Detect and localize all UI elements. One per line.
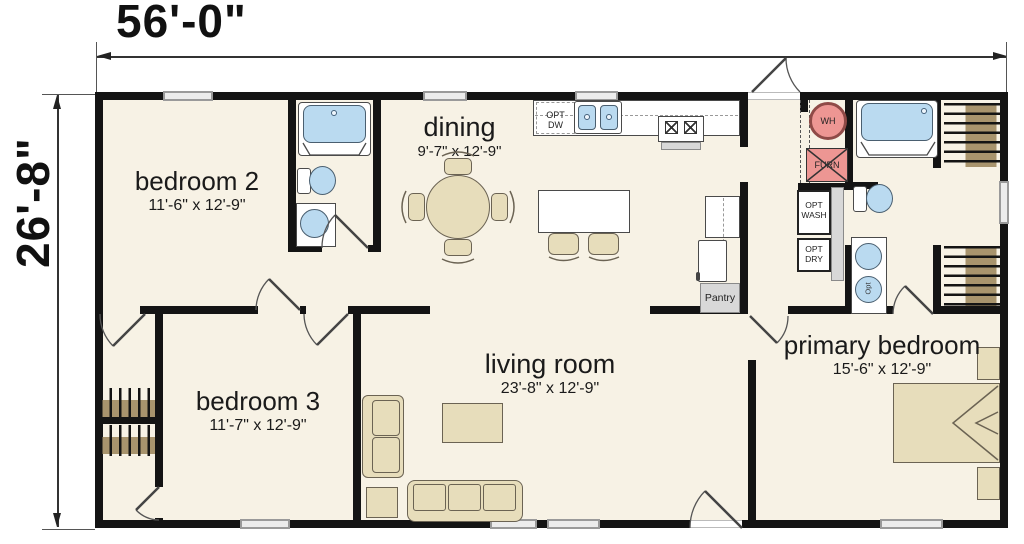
window [423,91,467,101]
window [547,519,600,529]
room-label-bedroom2: bedroom 2 11'-6" x 12'-9" [97,168,297,215]
wall-segment [742,520,1008,528]
opt-washer-label: OPT WASH [797,201,831,221]
refrigerator-handle [696,272,700,281]
height-dim-arrow-down [53,513,61,527]
window [240,519,290,529]
opt-dishwasher-label: OPT DW [536,110,575,131]
water-heater-label: WH [809,116,847,126]
refrigerator-icon [698,240,727,282]
sink-icon [300,209,329,238]
room-size: 11'-7" x 12'-9" [158,418,358,435]
toilet-icon [866,184,893,213]
burner-icon [665,121,678,134]
stool-icon [588,233,619,255]
toilet-icon [309,166,336,195]
dining-table-icon [426,175,490,239]
room-name: dining [392,113,527,141]
extension-line [1006,42,1007,92]
opt-dryer-label: OPT DRY [797,245,831,265]
chair-icon [444,239,472,256]
room-size: 9'-7" x 12'-9" [392,144,527,160]
wall-segment [140,306,258,314]
stool-icon [548,233,579,255]
wall-segment [95,520,690,528]
tub-drain [331,110,337,116]
closet-hangers-icon [944,103,1000,167]
room-label-bedroom3: bedroom 3 11'-7" x 12'-9" [158,388,358,435]
wall-segment [348,306,430,314]
wall-segment [155,518,163,528]
sofa-cushion [413,484,446,511]
room-label-primary-bedroom: primary bedroom 15'-6" x 12'-9" [768,332,996,379]
wall-segment [373,100,381,252]
window [999,181,1009,224]
wall-segment [740,182,748,314]
width-dimension-line [97,56,1007,58]
laundry-counter [831,187,844,281]
height-dim-arrow-up [53,95,61,109]
pantry-label: Pantry [700,292,740,304]
extension-line [42,529,95,530]
closet-hangers-icon [100,388,155,419]
wall-segment [933,245,941,314]
sofa-cushion [483,484,516,511]
furnace-label: FURN [806,160,848,170]
width-dim-arrow-left [97,52,111,60]
chair-icon [408,193,425,221]
room-name: bedroom 2 [97,168,297,195]
window [163,91,213,101]
overall-width-dimension: 56'-0" [116,0,247,48]
floor-plan-sheet: 56'-0" 26'-8" [0,0,1024,544]
loveseat-cushion [372,400,400,436]
room-name: primary bedroom [768,332,996,359]
nightstand-icon [977,467,1000,500]
closet-hangers-icon [944,246,1000,306]
chair-icon [491,193,508,221]
chair-icon [444,158,472,175]
kitchen-island [538,190,630,233]
room-label-living-room: living room 23'-8" x 12'-9" [430,350,670,398]
wall-segment [368,245,381,252]
rear-door-threshold [748,92,800,100]
room-size: 23'-8" x 12'-9" [430,381,670,398]
room-name: living room [430,350,670,378]
extension-line [42,94,95,95]
window [880,519,943,529]
toilet-tank [853,186,867,212]
wall-segment [800,92,1008,100]
sink-drain [584,114,590,120]
room-label-dining: dining 9'-7" x 12'-9" [392,113,527,160]
sink-icon [855,243,882,270]
loveseat-cushion [372,437,400,473]
wall-segment [300,306,306,314]
wall-segment [95,92,103,528]
room-size: 11'-6" x 12'-9" [97,198,297,215]
room-name: bedroom 3 [158,388,358,415]
overall-height-dimension: 26'-8" [6,137,60,268]
bed-icon [893,383,1000,463]
opt-sink-label: Opt [864,282,873,294]
wall-segment [748,360,756,528]
wall-segment [933,306,1008,314]
tub-drain [921,108,927,114]
extension-line [96,42,97,92]
end-table-icon [366,487,398,518]
sink-drain [606,114,612,120]
width-dim-arrow-right [993,52,1007,60]
height-dimension-line [57,95,59,527]
closet-hangers-icon [100,425,155,456]
front-door-threshold [690,520,742,528]
room-size: 15'-6" x 12'-9" [768,362,996,379]
wall-segment [740,100,748,147]
range-front [661,142,701,150]
burner-icon [684,121,697,134]
sofa-cushion [448,484,481,511]
coffee-table-icon [442,403,503,443]
